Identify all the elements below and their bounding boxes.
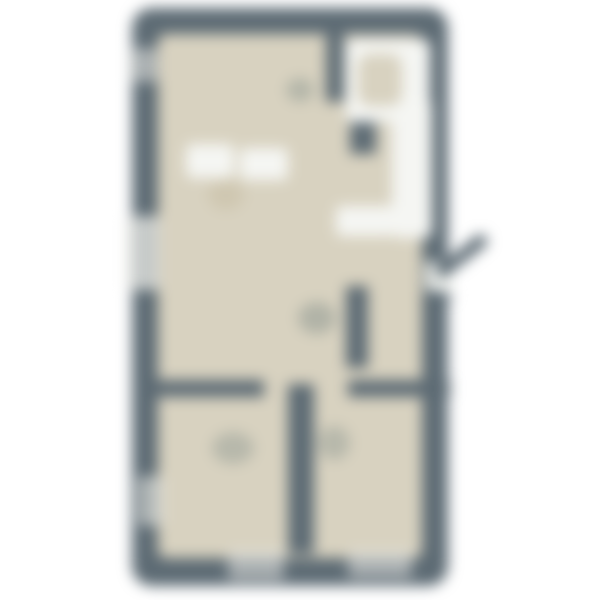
- window-left-upper: [128, 48, 158, 82]
- window-bottom-right: [348, 550, 412, 578]
- door-smudge-bathroom: [286, 78, 314, 102]
- vanity-band: [336, 206, 394, 236]
- wall-entry-divider: [346, 286, 368, 368]
- floor-plan: [0, 0, 600, 600]
- door-smudge-bedroom-right: [318, 426, 350, 460]
- screenshot-background: [0, 0, 600, 600]
- window-left-lower: [138, 476, 164, 526]
- bathtub-strip: [392, 98, 432, 238]
- door-smudge-bedroom-left: [212, 432, 254, 464]
- kitchen-counter-right: [240, 148, 288, 180]
- kitchen-table-blob: [208, 180, 244, 210]
- wall-bedroom-divider: [288, 384, 314, 554]
- window-bottom-left: [228, 550, 284, 580]
- wall-bedrooms-top-left: [152, 380, 264, 397]
- door-smudge-hall: [298, 302, 336, 334]
- wall-bath-vertical-upper: [326, 28, 344, 102]
- kitchen-counter-left: [186, 144, 234, 178]
- bathroom-fixture-blob: [358, 54, 402, 106]
- window-left-middle: [126, 216, 160, 290]
- wall-bedrooms-top-right: [348, 380, 450, 397]
